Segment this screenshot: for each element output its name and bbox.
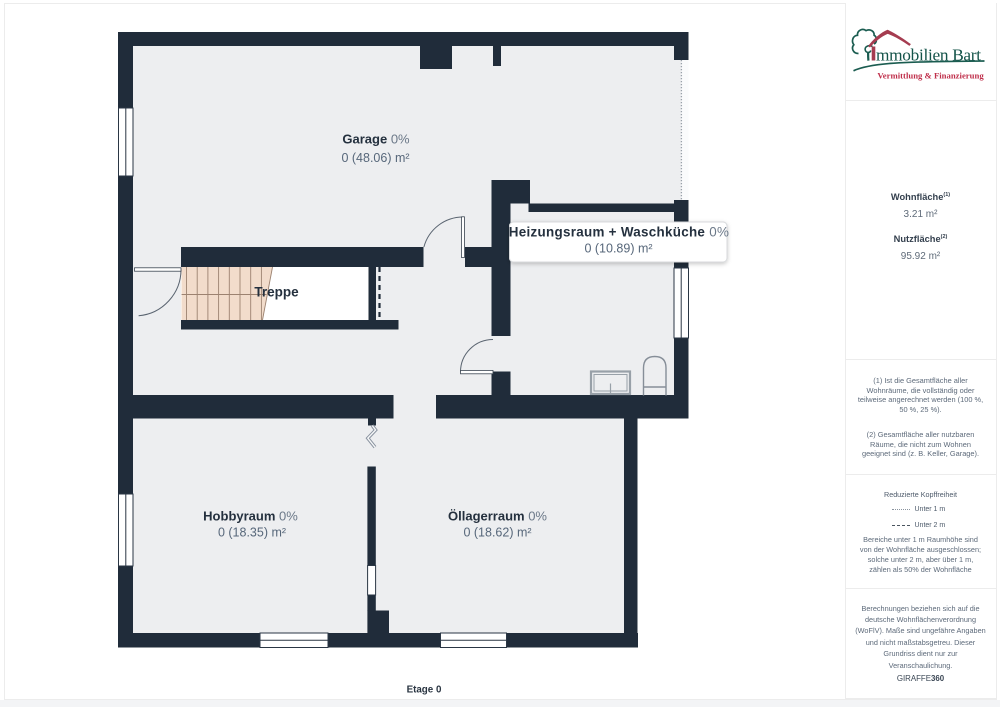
svg-text:Heizungsraum + Waschküche 0%: Heizungsraum + Waschküche 0% [509,225,729,240]
svg-text:0 (18.35) m²: 0 (18.35) m² [218,526,286,540]
svg-text:Etage 0: Etage 0 [407,685,442,696]
svg-text:0 (18.62) m²: 0 (18.62) m² [463,526,531,540]
svg-text:0 (48.06) m²: 0 (48.06) m² [341,151,409,165]
svg-text:0 (10.89) m²: 0 (10.89) m² [584,242,652,256]
svg-text:Garage 0%: Garage 0% [342,132,410,147]
svg-text:Öllagerraum 0%: Öllagerraum 0% [448,509,547,524]
svg-text:Hobbyraum 0%: Hobbyraum 0% [203,509,298,524]
svg-text:Treppe: Treppe [254,285,299,300]
svg-text:Vermittlung & Finanzierung: Vermittlung & Finanzierung [877,71,984,81]
